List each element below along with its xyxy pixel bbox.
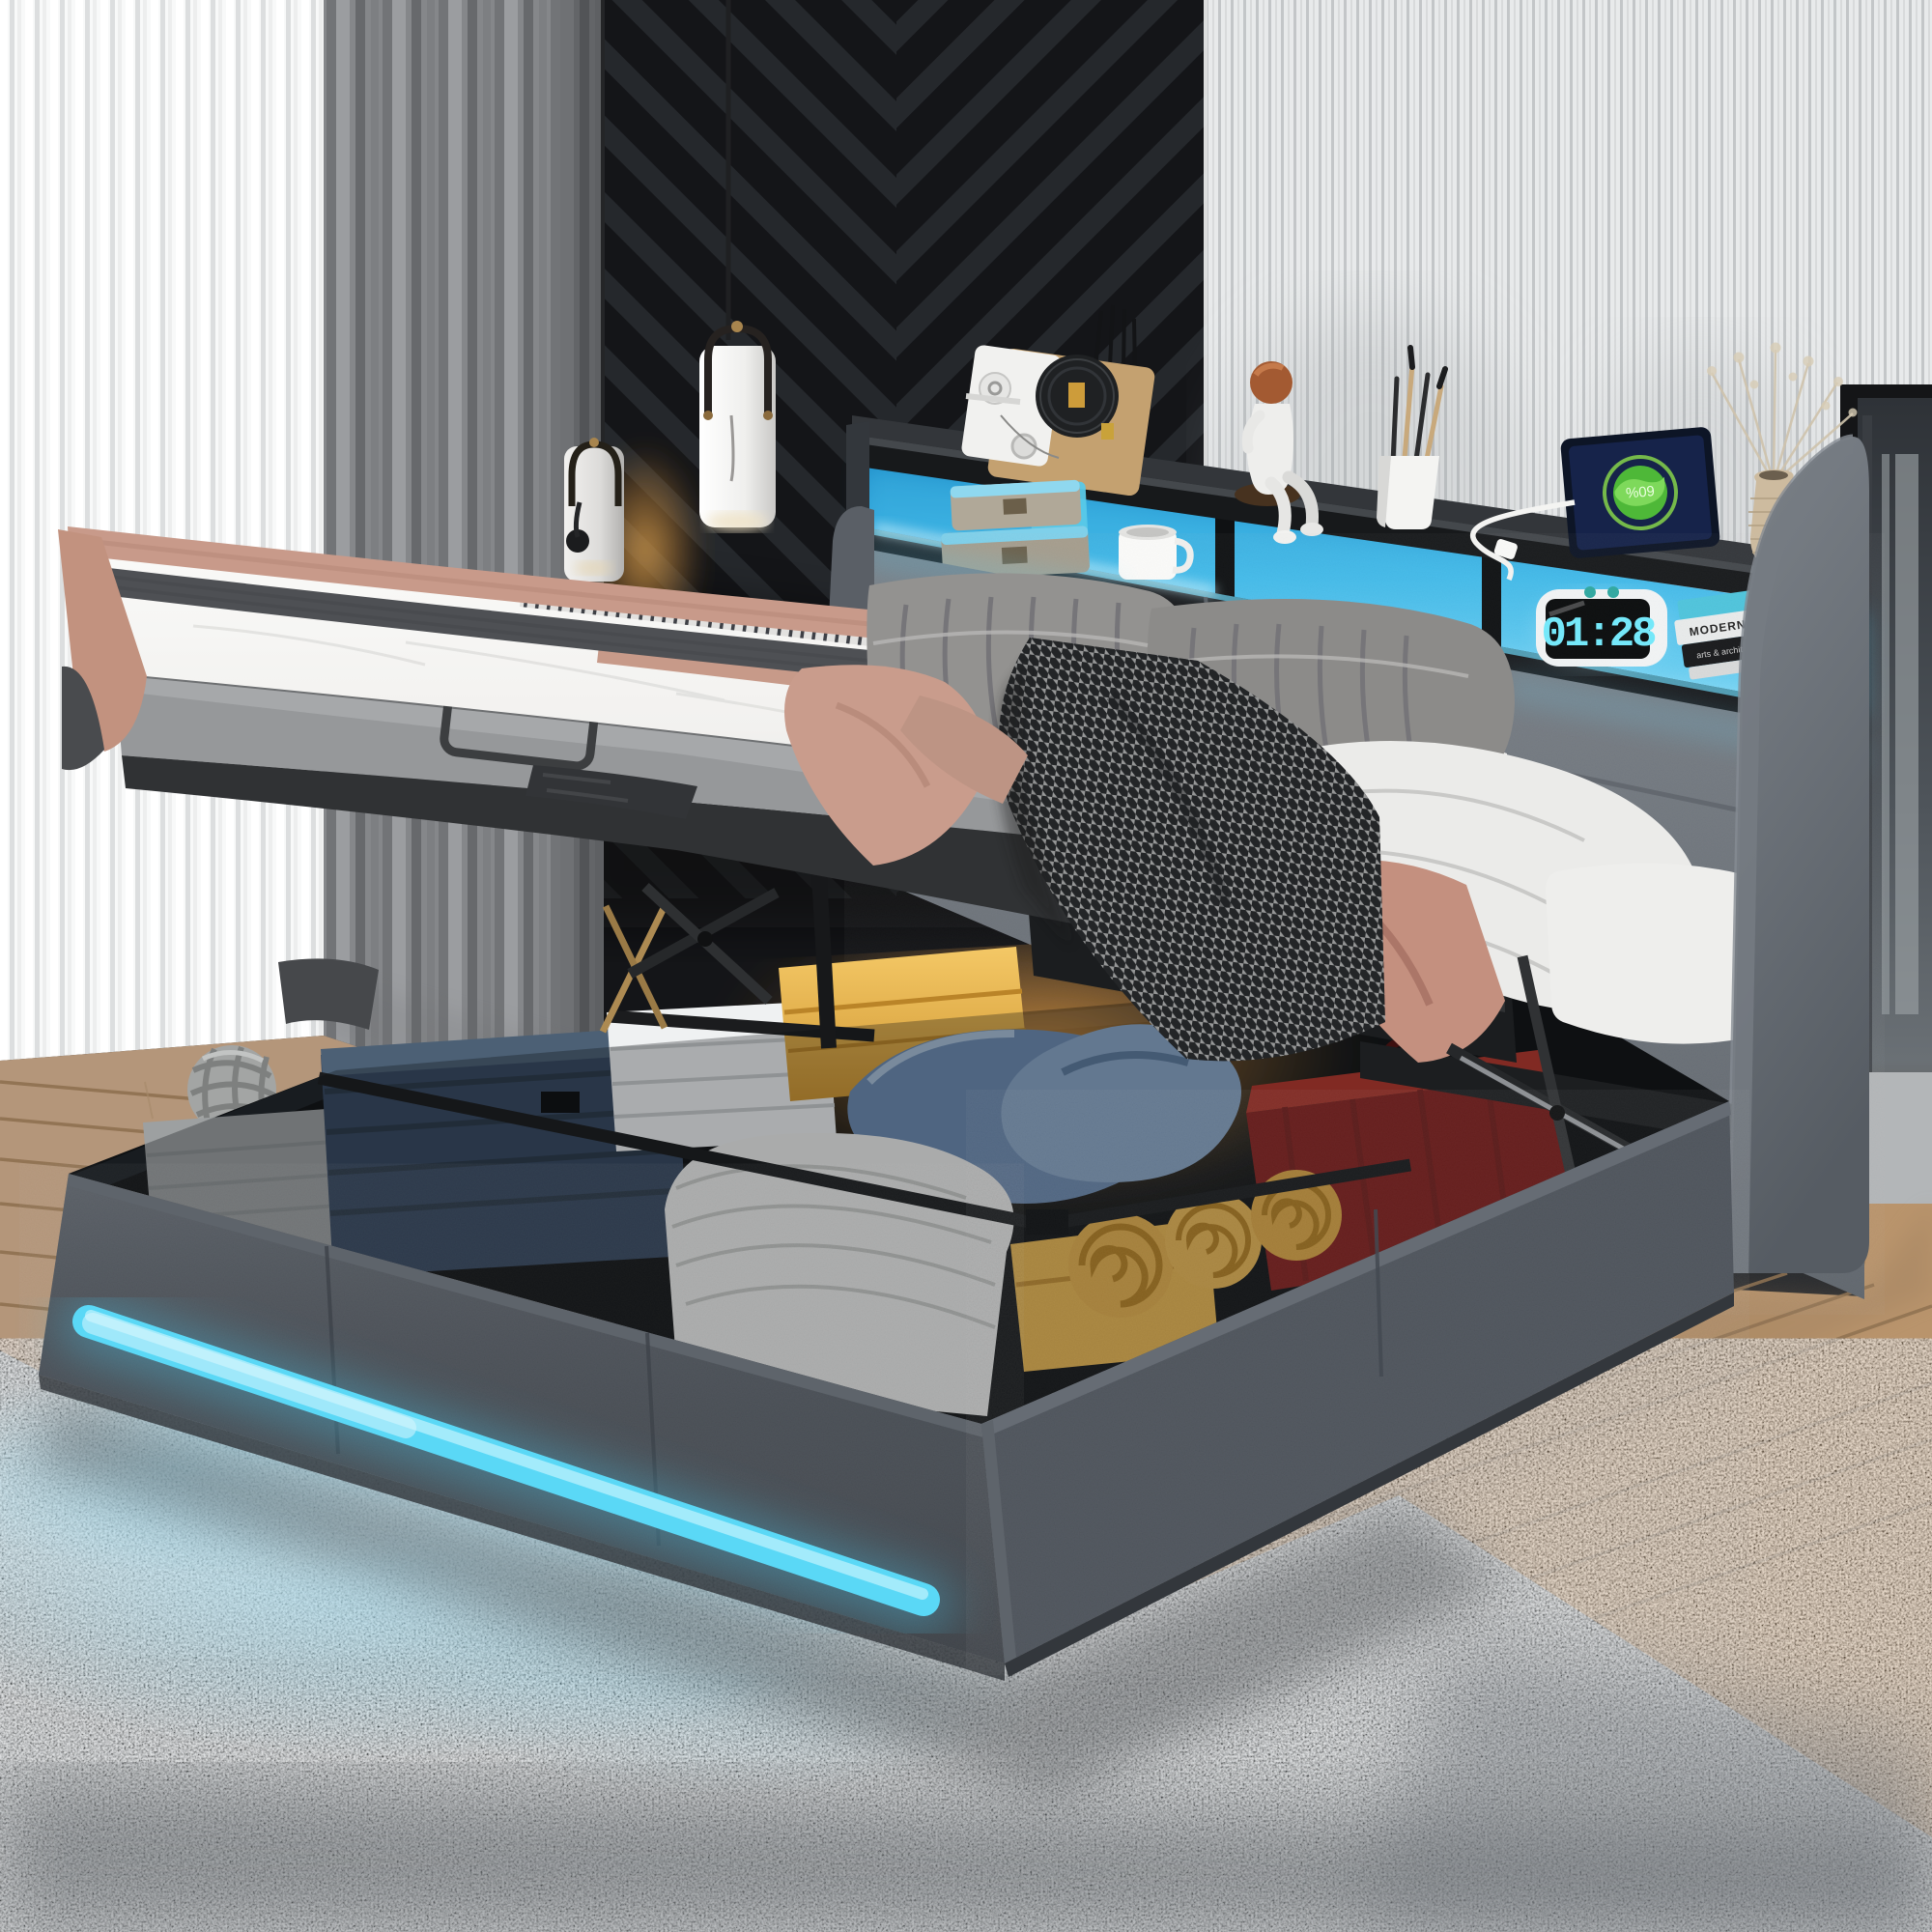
svg-text:60%: 60% [1625,482,1655,501]
svg-text:01:28: 01:28 [1541,611,1656,659]
